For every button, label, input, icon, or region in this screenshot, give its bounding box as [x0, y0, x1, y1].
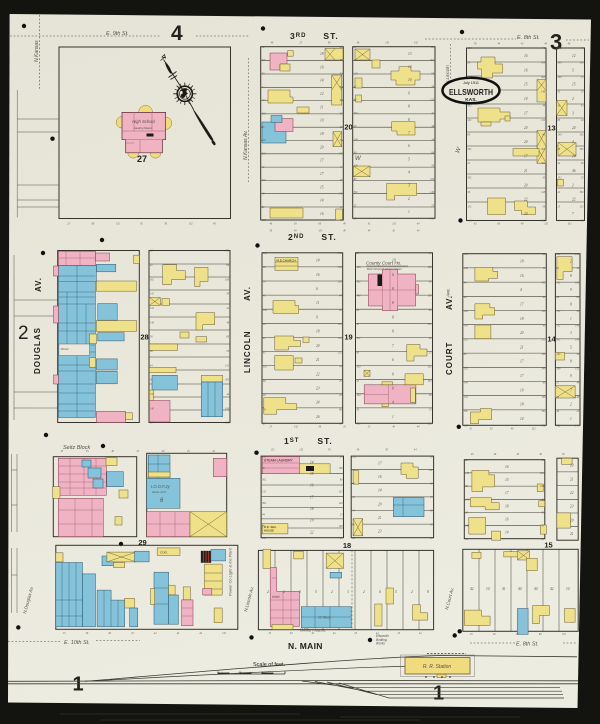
svg-text:ELLSWORTH: ELLSWORTH	[449, 87, 493, 97]
svg-text:15: 15	[544, 541, 552, 550]
svg-text:8: 8	[392, 372, 394, 376]
svg-text:4: 4	[408, 171, 410, 175]
svg-text:11: 11	[320, 105, 324, 109]
svg-text:1: 1	[433, 683, 444, 705]
svg-text:3: 3	[408, 184, 410, 188]
svg-text:16: 16	[378, 475, 382, 479]
svg-text:20: 20	[570, 464, 574, 468]
svg-text:14: 14	[572, 155, 576, 159]
svg-text:4: 4	[171, 22, 183, 45]
svg-text:1: 1	[73, 674, 84, 696]
svg-text:15: 15	[524, 83, 528, 87]
svg-text:12: 12	[320, 92, 324, 96]
svg-text:5: 5	[299, 590, 301, 594]
svg-text:19: 19	[520, 388, 524, 392]
svg-text:6: 6	[392, 273, 394, 277]
svg-text:8: 8	[427, 590, 429, 594]
svg-text:AV.: AV.	[243, 286, 252, 301]
svg-text:12: 12	[408, 65, 412, 69]
svg-text:17: 17	[320, 159, 324, 163]
svg-text:High School: High School	[132, 119, 156, 124]
svg-text:8: 8	[570, 303, 572, 307]
svg-text:9: 9	[570, 288, 572, 292]
svg-text:5: 5	[570, 345, 572, 349]
svg-text:5: 5	[408, 157, 410, 161]
svg-text:2: 2	[572, 97, 574, 101]
svg-text:Hotel: Hotel	[272, 595, 280, 599]
svg-text:17: 17	[520, 303, 524, 307]
svg-text:4: 4	[392, 401, 394, 405]
svg-text:15: 15	[310, 472, 314, 476]
svg-text:15: 15	[320, 185, 324, 189]
svg-text:9: 9	[570, 374, 572, 378]
svg-text:46: 46	[572, 169, 576, 173]
svg-text:8: 8	[392, 387, 394, 391]
svg-text:13: 13	[547, 124, 555, 133]
svg-text:8: 8	[392, 315, 394, 319]
svg-text:42: 42	[470, 587, 474, 591]
svg-text:7: 7	[392, 344, 394, 348]
svg-text:Wood: Wood	[61, 347, 69, 351]
svg-text:23: 23	[316, 387, 320, 391]
svg-text:16: 16	[520, 274, 524, 278]
svg-text:STEAM LAUNDRY: STEAM LAUNDRY	[264, 459, 294, 463]
svg-text:2: 2	[363, 590, 365, 594]
svg-text:17: 17	[524, 111, 528, 115]
svg-text:16: 16	[310, 484, 314, 488]
svg-text:3: 3	[572, 111, 574, 115]
svg-text:3: 3	[570, 331, 572, 335]
svg-text:KAS.: KAS.	[465, 97, 476, 103]
svg-text:28: 28	[140, 333, 148, 342]
svg-text:Scale of feet.: Scale of feet.	[253, 662, 286, 668]
svg-text:20: 20	[524, 126, 528, 130]
svg-text:18: 18	[320, 132, 324, 136]
svg-text:17: 17	[310, 495, 314, 499]
svg-text:County Court Ho.: County Court Ho.	[366, 261, 402, 266]
svg-text:2: 2	[267, 590, 269, 594]
svg-text:6: 6	[316, 287, 318, 291]
svg-text:6: 6	[379, 590, 381, 594]
svg-text:21: 21	[570, 477, 574, 481]
svg-text:July 1911: July 1911	[463, 81, 479, 85]
svg-text:9: 9	[408, 91, 410, 95]
svg-text:2: 2	[18, 323, 29, 344]
svg-text:COURT: COURT	[445, 342, 454, 375]
svg-text:13: 13	[408, 52, 412, 56]
svg-text:2: 2	[570, 260, 572, 264]
svg-text:21: 21	[524, 169, 528, 173]
svg-text:Heating Steam: Heating Steam	[134, 126, 153, 130]
svg-text:Stores 1st fl.: Stores 1st fl.	[152, 490, 167, 494]
svg-text:LINCOLN: LINCOLN	[243, 330, 252, 373]
svg-text:N.Kansas Av.: N.Kansas Av.	[243, 130, 249, 160]
svg-text:21: 21	[570, 532, 574, 536]
svg-text:20: 20	[316, 344, 320, 348]
svg-text:20: 20	[520, 331, 524, 335]
svg-text:HOUSE: HOUSE	[264, 529, 274, 533]
svg-text:19: 19	[344, 333, 352, 342]
svg-text:9: 9	[316, 315, 318, 319]
svg-text:23: 23	[378, 530, 382, 534]
svg-text:2: 2	[283, 590, 285, 594]
svg-text:18: 18	[310, 507, 314, 511]
svg-text:26: 26	[316, 415, 320, 419]
svg-text:7: 7	[572, 212, 574, 216]
svg-text:21: 21	[378, 516, 382, 520]
svg-text:E. 8th St.: E. 8th St.	[516, 642, 539, 648]
svg-text:1: 1	[392, 415, 394, 419]
svg-text:Works: Works	[376, 642, 385, 646]
svg-text:21: 21	[316, 358, 320, 362]
svg-text:11: 11	[316, 301, 320, 305]
svg-text:17: 17	[524, 155, 528, 159]
svg-text:14: 14	[316, 259, 320, 263]
svg-text:17: 17	[520, 374, 524, 378]
svg-text:14: 14	[310, 460, 314, 464]
svg-text:14: 14	[320, 79, 324, 83]
svg-text:2: 2	[411, 590, 413, 594]
svg-text:14: 14	[320, 199, 324, 203]
svg-text:22: 22	[524, 198, 528, 202]
svg-text:24: 24	[524, 212, 528, 216]
svg-text:7: 7	[570, 388, 572, 392]
svg-text:16: 16	[524, 68, 528, 72]
svg-text:18: 18	[520, 260, 524, 264]
svg-text:16: 16	[320, 65, 324, 69]
svg-text:19: 19	[310, 519, 314, 523]
svg-text:5: 5	[572, 68, 574, 72]
svg-text:22: 22	[572, 198, 576, 202]
svg-text:5: 5	[315, 590, 317, 594]
svg-text:18: 18	[320, 52, 324, 56]
svg-text:24: 24	[572, 126, 576, 130]
svg-text:12: 12	[572, 54, 576, 58]
svg-text:24: 24	[316, 401, 320, 405]
svg-text:Ave.: Ave.	[446, 288, 451, 298]
svg-text:20: 20	[570, 518, 574, 522]
svg-text:41: 41	[502, 587, 506, 591]
svg-text:2: 2	[331, 590, 333, 594]
svg-text:14: 14	[505, 531, 509, 535]
svg-text:8: 8	[392, 287, 394, 291]
svg-text:19: 19	[392, 259, 396, 263]
svg-text:27: 27	[137, 154, 147, 164]
svg-text:16: 16	[316, 273, 320, 277]
svg-text:16: 16	[505, 465, 509, 469]
svg-text:1: 1	[408, 210, 410, 214]
svg-text:5: 5	[395, 590, 397, 594]
svg-text:20: 20	[344, 123, 352, 132]
svg-text:18: 18	[343, 541, 351, 550]
svg-text:17: 17	[320, 172, 324, 176]
svg-text:4: 4	[520, 288, 522, 292]
svg-text:14: 14	[378, 489, 382, 493]
svg-text:16: 16	[505, 518, 509, 522]
svg-text:E. 10th St.: E. 10th St.	[64, 640, 90, 646]
svg-text:Power Co Light & Ice Plant: Power Co Light & Ice Plant	[228, 547, 233, 596]
svg-text:20: 20	[524, 140, 528, 144]
svg-text:40: 40	[534, 587, 538, 591]
svg-text:1: 1	[570, 417, 572, 421]
svg-text:14: 14	[524, 97, 528, 101]
svg-text:8: 8	[392, 330, 394, 334]
svg-text:6: 6	[392, 358, 394, 362]
svg-text:40: 40	[518, 587, 522, 591]
svg-text:42: 42	[550, 587, 554, 591]
svg-text:8: 8	[570, 274, 572, 278]
svg-text:16: 16	[320, 212, 324, 216]
svg-text:I.O.O.F.2y: I.O.O.F.2y	[151, 484, 171, 489]
svg-text:18: 18	[505, 504, 509, 508]
svg-text:15: 15	[572, 83, 576, 87]
svg-text:17: 17	[505, 491, 509, 495]
svg-text:4: 4	[572, 140, 574, 144]
svg-text:8: 8	[570, 360, 572, 364]
svg-text:12 Story: 12 Story	[318, 616, 331, 620]
svg-text:10: 10	[408, 78, 412, 82]
svg-text:6: 6	[408, 144, 410, 148]
svg-text:15: 15	[505, 478, 509, 482]
svg-text:3: 3	[347, 590, 349, 594]
svg-text:10: 10	[486, 587, 490, 591]
svg-text:18: 18	[520, 317, 524, 321]
svg-text:E. 9th St.: E. 9th St.	[106, 31, 129, 37]
svg-text:18: 18	[316, 330, 320, 334]
svg-text:22: 22	[310, 530, 314, 534]
svg-text:17: 17	[378, 462, 382, 466]
svg-text:20: 20	[320, 145, 324, 149]
svg-text:22: 22	[570, 491, 574, 495]
svg-text:M.E.CHURCH: M.E.CHURCH	[277, 258, 296, 262]
svg-text:20: 20	[524, 183, 528, 187]
svg-text:N.Kansas: N.Kansas	[34, 40, 40, 62]
svg-text:8: 8	[408, 105, 410, 109]
svg-text:16: 16	[524, 54, 528, 58]
svg-text:17: 17	[520, 360, 524, 364]
svg-text:N. MAIN: N. MAIN	[288, 641, 323, 651]
svg-text:8: 8	[392, 301, 394, 305]
svg-text:20: 20	[378, 502, 382, 506]
svg-text:14: 14	[520, 417, 524, 421]
svg-text:10: 10	[320, 119, 324, 123]
svg-text:Conl.: Conl.	[160, 551, 168, 555]
svg-text:2: 2	[572, 183, 574, 187]
svg-text:E. 8th St.: E. 8th St.	[517, 35, 540, 41]
svg-text:8: 8	[408, 118, 410, 122]
svg-text:23: 23	[570, 505, 574, 509]
svg-text:22: 22	[316, 372, 320, 376]
svg-text:2: 2	[408, 197, 410, 201]
svg-text:DOUGLAS: DOUGLAS	[33, 327, 42, 374]
svg-text:AV.: AV.	[34, 277, 43, 292]
svg-text:R. R. Station: R. R. Station	[423, 664, 452, 670]
svg-text:21: 21	[520, 345, 524, 349]
svg-text:7: 7	[408, 131, 410, 135]
svg-text:18: 18	[520, 403, 524, 407]
svg-text:1: 1	[570, 317, 572, 321]
svg-text:2: 2	[570, 403, 572, 407]
svg-text:10: 10	[566, 587, 570, 591]
